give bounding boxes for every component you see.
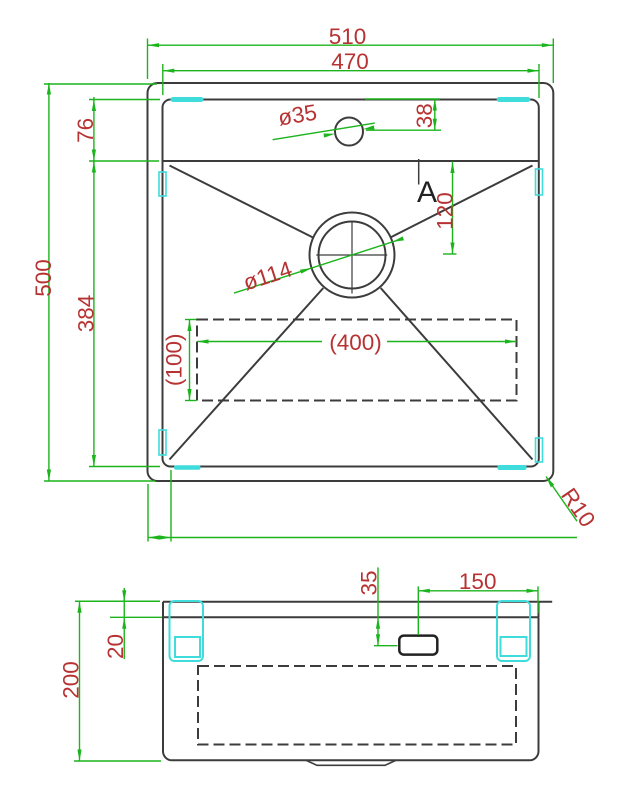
svg-text:200: 200 xyxy=(59,661,84,699)
svg-text:35: 35 xyxy=(357,570,382,595)
svg-text:500: 500 xyxy=(31,259,56,297)
svg-text:470: 470 xyxy=(331,49,369,74)
svg-text:76: 76 xyxy=(73,118,98,143)
svg-text:384: 384 xyxy=(74,295,99,333)
svg-text:120: 120 xyxy=(432,192,457,230)
svg-text:38: 38 xyxy=(412,103,437,128)
svg-text:20: 20 xyxy=(103,634,128,659)
svg-text:150: 150 xyxy=(459,569,497,594)
svg-text:(100): (100) xyxy=(162,334,187,387)
svg-text:(400): (400) xyxy=(329,330,382,355)
svg-text:510: 510 xyxy=(329,24,367,49)
